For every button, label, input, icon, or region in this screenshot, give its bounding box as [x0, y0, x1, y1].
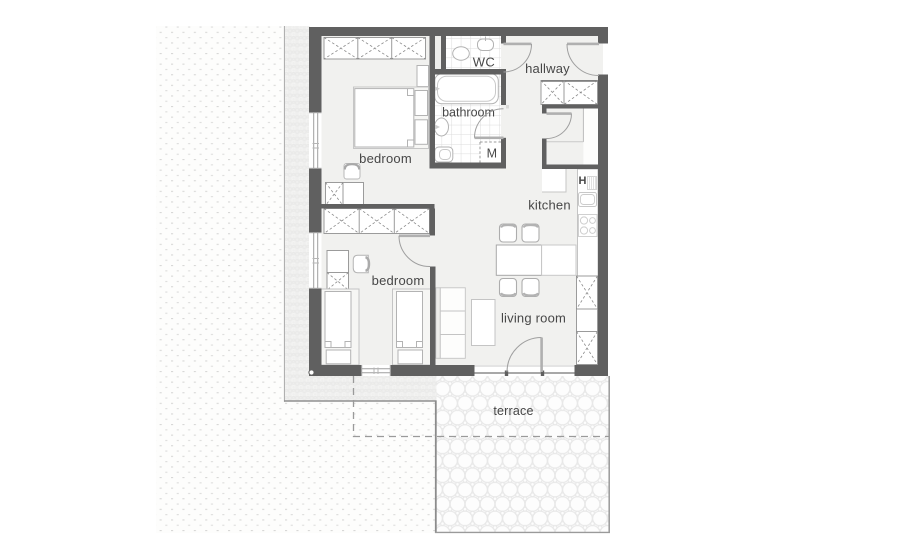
svg-text:kitchen: kitchen — [528, 198, 571, 213]
svg-text:bedroom: bedroom — [359, 151, 412, 166]
svg-text:bedroom: bedroom — [372, 273, 425, 288]
svg-text:terrace: terrace — [493, 404, 533, 418]
svg-text:living room: living room — [501, 311, 566, 326]
svg-text:hallway: hallway — [525, 61, 570, 76]
svg-text:WC: WC — [473, 55, 495, 70]
svg-text:bathroom: bathroom — [442, 106, 495, 120]
svg-text:H: H — [579, 175, 587, 187]
svg-text:M: M — [487, 147, 497, 161]
